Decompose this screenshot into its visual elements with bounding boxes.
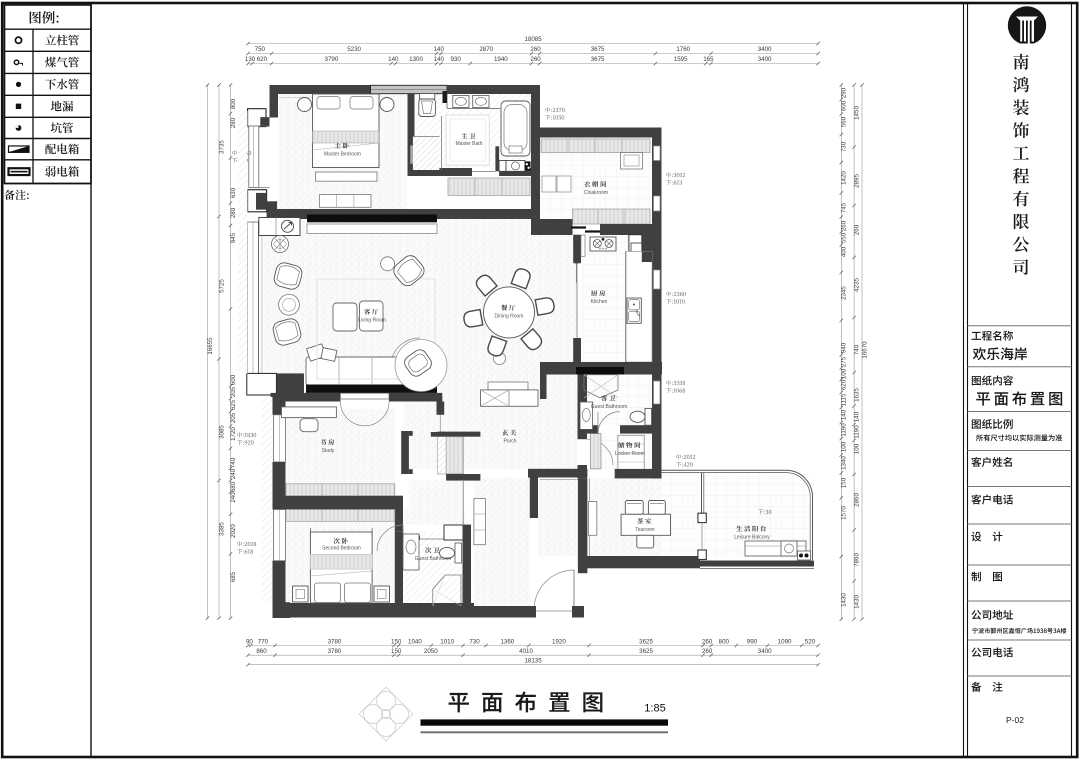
svg-text:3625: 3625	[639, 648, 653, 655]
svg-text:1760: 1760	[676, 46, 690, 53]
svg-text:Second Bedroom: Second Bedroom	[322, 546, 361, 552]
svg-text:1090: 1090	[778, 638, 792, 645]
svg-text:1340: 1340	[841, 456, 848, 470]
svg-text:625: 625	[230, 399, 237, 410]
svg-text:685: 685	[230, 571, 237, 582]
svg-text:3385: 3385	[218, 522, 225, 536]
svg-text:P-02: P-02	[1006, 715, 1024, 725]
svg-text:400: 400	[841, 246, 848, 257]
svg-text:165: 165	[703, 56, 714, 63]
svg-text:90: 90	[246, 638, 253, 645]
svg-text:5725: 5725	[218, 279, 225, 293]
svg-text:Study: Study	[322, 448, 335, 454]
svg-text:260: 260	[530, 56, 541, 63]
svg-text:18135: 18135	[524, 658, 542, 665]
svg-text:2895: 2895	[853, 174, 860, 188]
svg-text:1570: 1570	[841, 506, 848, 520]
svg-text:240: 240	[230, 492, 237, 503]
svg-text:140: 140	[841, 409, 848, 420]
svg-text:1300: 1300	[409, 56, 423, 63]
svg-text:600: 600	[841, 100, 848, 111]
svg-text:205: 205	[230, 412, 237, 423]
svg-text:1040: 1040	[408, 638, 422, 645]
svg-text:18085: 18085	[524, 36, 542, 43]
svg-text:3085: 3085	[218, 425, 225, 439]
svg-text:2050: 2050	[424, 648, 438, 655]
svg-text:1420: 1420	[841, 171, 848, 185]
svg-text:1190: 1190	[853, 425, 860, 439]
svg-text:630: 630	[230, 187, 237, 198]
svg-text:1450: 1450	[853, 106, 860, 120]
svg-text:5230: 5230	[347, 46, 361, 53]
svg-text:1430: 1430	[841, 593, 848, 607]
svg-text:140: 140	[434, 46, 445, 53]
svg-text:800: 800	[230, 98, 237, 109]
svg-text:275: 275	[841, 356, 848, 367]
svg-text:Cloakroom: Cloakroom	[584, 190, 608, 196]
svg-text:Tearoom: Tearoom	[635, 527, 654, 533]
svg-text:100: 100	[841, 368, 848, 379]
svg-text:140: 140	[388, 56, 399, 63]
svg-text:Kitchen: Kitchen	[591, 299, 608, 305]
svg-text:1940: 1940	[494, 56, 508, 63]
svg-text:3735: 3735	[218, 140, 225, 154]
svg-text:3400: 3400	[758, 46, 772, 53]
svg-text:2345: 2345	[841, 286, 848, 300]
svg-text:Master Bath: Master Bath	[456, 141, 483, 147]
svg-text:260: 260	[702, 638, 713, 645]
svg-text:740: 740	[853, 344, 860, 355]
svg-text:520: 520	[805, 638, 816, 645]
svg-text:16655: 16655	[207, 337, 214, 355]
svg-text:940: 940	[841, 342, 848, 353]
svg-text:150: 150	[391, 638, 402, 645]
svg-text:620: 620	[841, 379, 848, 390]
svg-text:280: 280	[230, 117, 237, 128]
svg-text:1920: 1920	[552, 638, 566, 645]
svg-text:1430: 1430	[853, 595, 860, 609]
svg-text:1115: 1115	[841, 393, 848, 406]
svg-text:1720: 1720	[230, 427, 237, 441]
svg-text:260: 260	[853, 224, 860, 235]
svg-text:745: 745	[841, 202, 848, 213]
svg-text:Leisure Balcony: Leisure Balcony	[734, 535, 770, 541]
svg-text:750: 750	[255, 46, 266, 53]
svg-text:2870: 2870	[479, 46, 493, 53]
svg-text:Master Bedroom: Master Bedroom	[324, 152, 361, 158]
svg-text:260: 260	[530, 46, 541, 53]
svg-text:620: 620	[257, 56, 268, 63]
svg-text:3625: 3625	[639, 638, 653, 645]
svg-text:1010: 1010	[440, 638, 454, 645]
svg-text:150: 150	[841, 477, 848, 488]
svg-text:990: 990	[747, 638, 758, 645]
svg-text:7860: 7860	[853, 553, 860, 567]
svg-text:Porch: Porch	[503, 439, 516, 445]
svg-text:1190: 1190	[841, 423, 848, 437]
svg-text:100: 100	[841, 441, 848, 452]
svg-text:740: 740	[230, 457, 237, 468]
svg-text:260: 260	[841, 220, 848, 231]
svg-text:16670: 16670	[861, 341, 868, 359]
svg-text:150: 150	[391, 648, 402, 655]
svg-text:730: 730	[841, 141, 848, 152]
svg-text:130: 130	[245, 56, 256, 63]
svg-text:3675: 3675	[591, 56, 605, 63]
svg-text:730: 730	[469, 638, 480, 645]
svg-text:240: 240	[230, 468, 237, 479]
svg-text:Guest Bathroom: Guest Bathroom	[415, 556, 451, 562]
svg-text:4235: 4235	[853, 278, 860, 292]
svg-text:2020: 2020	[230, 524, 237, 538]
svg-text:290: 290	[841, 87, 848, 98]
svg-text:680: 680	[230, 481, 237, 492]
svg-text:930: 930	[450, 56, 461, 63]
svg-text:3675: 3675	[591, 46, 605, 53]
svg-text:600: 600	[230, 374, 237, 385]
svg-text:945: 945	[230, 232, 237, 243]
svg-text:280: 280	[230, 207, 237, 218]
svg-text:1360: 1360	[500, 638, 514, 645]
svg-text:Locker Room: Locker Room	[615, 451, 645, 457]
svg-text:260: 260	[702, 648, 713, 655]
svg-text:3400: 3400	[758, 648, 772, 655]
svg-text:1595: 1595	[674, 56, 688, 63]
svg-text:800: 800	[719, 638, 730, 645]
svg-text:560: 560	[841, 116, 848, 127]
svg-text:550: 550	[841, 232, 848, 243]
svg-text:3780: 3780	[328, 638, 342, 645]
svg-text:1:85: 1:85	[644, 703, 665, 715]
svg-text:770: 770	[258, 638, 269, 645]
svg-text:Dining Room: Dining Room	[495, 314, 524, 320]
svg-text:2860: 2860	[853, 493, 860, 507]
svg-text:1635: 1635	[853, 388, 860, 402]
svg-text:860: 860	[256, 648, 267, 655]
svg-text:Living Room: Living Room	[358, 318, 386, 324]
svg-text:3780: 3780	[328, 648, 342, 655]
svg-text:140: 140	[434, 56, 445, 63]
svg-text:Guest Bathroom: Guest Bathroom	[591, 404, 627, 410]
svg-text:205: 205	[230, 386, 237, 397]
svg-text:4010: 4010	[519, 648, 533, 655]
svg-text:100: 100	[853, 443, 860, 454]
svg-text:3790: 3790	[325, 56, 339, 63]
svg-text:140: 140	[853, 411, 860, 422]
svg-text:3400: 3400	[758, 56, 772, 63]
